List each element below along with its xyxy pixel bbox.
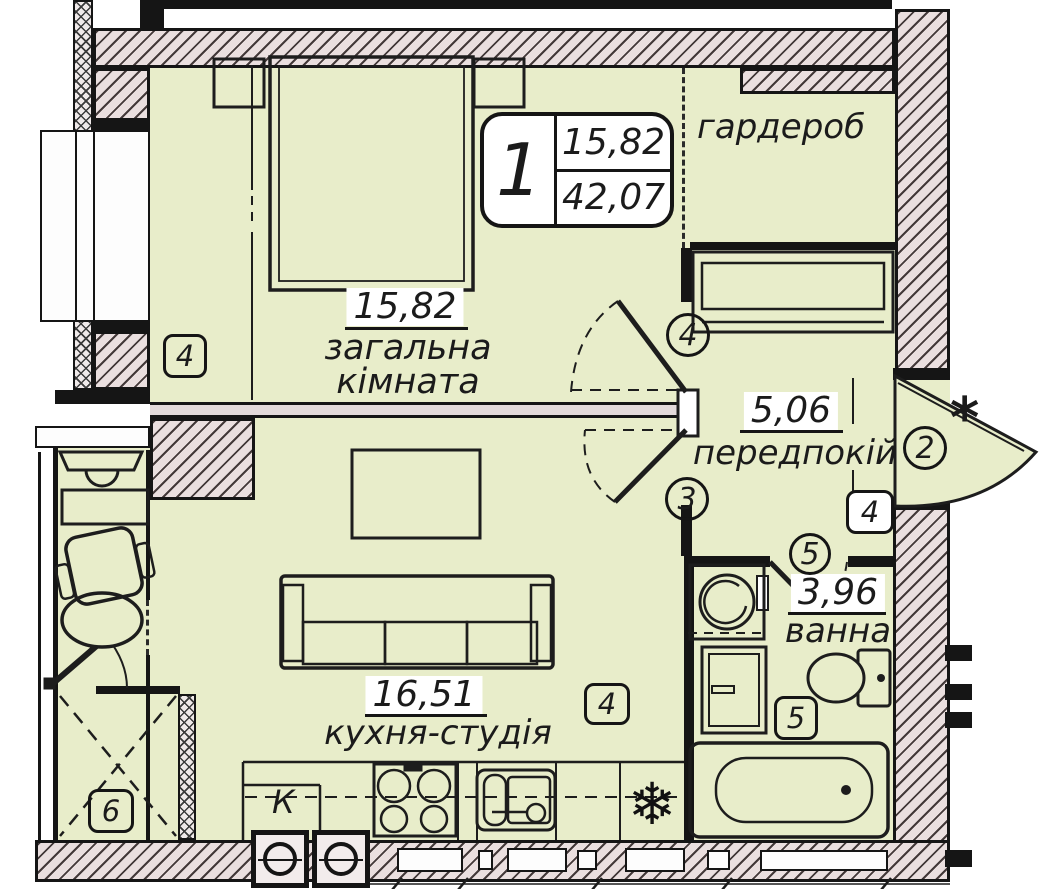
wall-left-step-band xyxy=(55,390,150,404)
window-bottom-3 xyxy=(507,848,567,872)
wall-right-lower xyxy=(893,500,950,882)
partition-hall-segment-upper xyxy=(681,248,692,302)
entrance-cap-bottom xyxy=(893,498,950,510)
window-left-cap-top xyxy=(93,118,150,130)
marker-window-bathroom: 5 xyxy=(774,696,818,740)
wall-tooth-3 xyxy=(945,712,972,728)
window-niche-top xyxy=(35,426,150,448)
window-left-bedroom xyxy=(40,130,150,322)
living-name-line2: кімната xyxy=(336,364,479,401)
wall-tooth-4 xyxy=(945,850,972,867)
column-shaft-1 xyxy=(251,830,309,888)
niche-divider-dashed xyxy=(146,600,149,655)
apartment-info-box: 1 15,82 42,07 xyxy=(480,112,674,228)
niche-divider-upper xyxy=(146,450,150,600)
wardrobe-bottom-wall xyxy=(690,242,895,250)
window-bottom-7 xyxy=(760,850,888,871)
column-axis-2 xyxy=(319,859,363,861)
insulation-shaft-strip xyxy=(178,694,196,840)
window-left-cap-bottom xyxy=(93,322,150,334)
bathroom-name: ванна xyxy=(785,614,891,650)
window-bottom-2 xyxy=(478,850,493,870)
window-bottom-6 xyxy=(707,850,730,870)
marker-window-kitchen: 4 xyxy=(584,683,630,725)
window-bottom-1 xyxy=(397,848,463,872)
marker-door-kitchen: 3 xyxy=(665,477,709,521)
window-left-frame-2 xyxy=(93,132,95,320)
bathroom-left-wall xyxy=(684,556,694,840)
hallway-name: передпокій xyxy=(693,436,897,472)
apartment-total-area: 42,07 xyxy=(557,172,670,225)
bathroom-top-wall-right xyxy=(848,556,895,567)
marker-door-living: 4 xyxy=(666,313,710,357)
hallway-area-value: 5,06 xyxy=(744,392,838,430)
column-axis-1 xyxy=(258,859,302,861)
kitchen-name: кухня-студія xyxy=(324,716,552,752)
shaft-top-sill xyxy=(96,686,180,694)
bathroom-area-value: 3,96 xyxy=(791,574,885,612)
marker-shaft: 6 xyxy=(88,789,134,833)
wall-corner-block xyxy=(150,418,255,500)
shaft-right-line xyxy=(146,694,150,840)
top-left-stub xyxy=(140,0,164,30)
window-bottom-4 xyxy=(577,850,597,870)
wall-tooth-1 xyxy=(945,645,972,661)
entrance-star: * xyxy=(950,390,979,449)
floor-niche xyxy=(55,440,150,840)
top-outer-line xyxy=(162,0,892,9)
window-bottom-5 xyxy=(625,848,685,872)
niche-outer-line xyxy=(38,452,41,840)
partition-living-kitchen xyxy=(150,402,690,418)
wall-tooth-2 xyxy=(945,684,972,700)
window-left-frame-1 xyxy=(75,132,77,320)
niche-outer-wall xyxy=(53,448,58,840)
wall-right-upper xyxy=(895,9,950,378)
entrance-cap-top xyxy=(893,368,950,380)
wall-top xyxy=(93,28,895,68)
niche-divider-lower xyxy=(146,655,150,686)
apartment-living-area: 15,82 xyxy=(557,116,670,172)
marker-window-living: 4 xyxy=(163,334,207,378)
open-boundary-living-wardrobe xyxy=(682,68,685,248)
wardrobe-label: гардероб xyxy=(697,110,865,146)
kitchen-area-value: 16,51 xyxy=(365,676,482,714)
marker-window-hallway: 4 xyxy=(846,490,894,534)
bathroom-top-wall-left xyxy=(686,556,770,567)
wall-top-step xyxy=(740,68,895,94)
floor-plan: ❄ 1 15,82 4 xyxy=(0,0,1040,889)
apartment-rooms-count: 1 xyxy=(484,116,557,224)
marker-door-bathroom: 5 xyxy=(789,533,831,575)
kitchen-vent-label: К xyxy=(272,786,295,820)
marker-door-entrance: 2 xyxy=(903,426,947,470)
column-shaft-2 xyxy=(312,830,370,888)
living-area-value: 15,82 xyxy=(346,288,463,326)
